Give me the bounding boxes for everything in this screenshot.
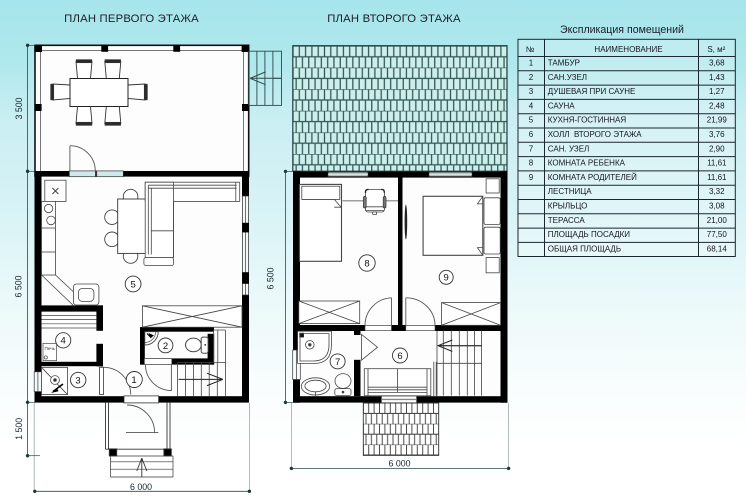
svg-text:1,43: 1,43 [709,73,725,82]
svg-text:9: 9 [529,173,534,182]
svg-text:1: 1 [529,59,534,68]
svg-text:21,99: 21,99 [707,116,728,125]
svg-text:6 500: 6 500 [266,267,276,289]
svg-text:6 000: 6 000 [388,458,410,468]
svg-text:3: 3 [529,87,534,96]
svg-text:2: 2 [529,73,534,82]
svg-text:3 500: 3 500 [14,97,24,119]
svg-text:3,68: 3,68 [709,59,725,68]
svg-text:6: 6 [529,130,534,139]
svg-text:НАИМЕНОВАНИЕ: НАИМЕНОВАНИЕ [594,45,662,54]
svg-text:Печь: Печь [45,346,56,351]
svg-text:68,14: 68,14 [707,244,728,253]
svg-text:Экспликация помещений: Экспликация помещений [560,24,684,36]
svg-text:11,61: 11,61 [707,159,727,168]
svg-text:САУНА: САУНА [548,101,575,110]
svg-text:КОМНАТА РЕБЕНКА: КОМНАТА РЕБЕНКА [548,159,626,168]
svg-text:ПЛАН ПЕРВОГО ЭТАЖА: ПЛАН ПЕРВОГО ЭТАЖА [64,13,199,25]
svg-text:ОБЩАЯ ПЛОЩАДЬ: ОБЩАЯ ПЛОЩАДЬ [548,244,621,253]
svg-text:8: 8 [364,258,369,269]
svg-text:№: № [526,45,535,54]
svg-text:9: 9 [444,273,449,284]
svg-text:3,32: 3,32 [709,187,725,196]
svg-text:1: 1 [131,375,136,386]
svg-text:77,50: 77,50 [707,230,728,239]
svg-text:6 500: 6 500 [14,275,24,297]
svg-text:ЛЕСТНИЦА: ЛЕСТНИЦА [548,187,592,196]
svg-text:САН. УЗЕЛ: САН. УЗЕЛ [548,144,589,153]
svg-text:5: 5 [529,116,534,125]
svg-text:7: 7 [335,357,340,368]
svg-text:ДУШЕВАЯ ПРИ САУНЕ: ДУШЕВАЯ ПРИ САУНЕ [548,87,636,96]
svg-text:ТАМБУР: ТАМБУР [548,59,580,68]
svg-text:ТЕРАССА: ТЕРАССА [548,216,586,225]
svg-text:4: 4 [529,101,534,110]
svg-text:7: 7 [529,144,534,153]
svg-text:2: 2 [163,341,168,352]
svg-text:6: 6 [397,351,402,362]
svg-text:4: 4 [61,336,66,347]
svg-text:ХОЛЛ ВТОРОГО ЭТАЖА: ХОЛЛ ВТОРОГО ЭТАЖА [548,130,643,139]
svg-text:КУХНЯ-ГОСТИННАЯ: КУХНЯ-ГОСТИННАЯ [548,116,627,125]
svg-text:3,76: 3,76 [709,130,725,139]
svg-text:S, м²: S, м² [707,45,725,54]
svg-text:21,00: 21,00 [707,216,728,225]
svg-text:3,08: 3,08 [709,202,725,211]
svg-text:КОМНАТА РОДИТЕЛЕЙ: КОМНАТА РОДИТЕЛЕЙ [548,173,637,182]
svg-text:8: 8 [529,159,534,168]
svg-text:КРЫЛЬЦО: КРЫЛЬЦО [548,202,588,211]
svg-text:ПЛОЩАДЬ ПОСАДКИ: ПЛОЩАДЬ ПОСАДКИ [548,230,630,239]
svg-text:3: 3 [75,375,80,386]
svg-text:5: 5 [130,279,135,290]
svg-text:1,27: 1,27 [709,87,725,96]
svg-text:11,61: 11,61 [707,173,727,182]
svg-text:6 000: 6 000 [130,482,152,492]
svg-text:ПЛАН ВТОРОГО ЭТАЖА: ПЛАН ВТОРОГО ЭТАЖА [327,13,461,25]
svg-text:САН.УЗЕЛ: САН.УЗЕЛ [548,73,587,82]
svg-text:2,48: 2,48 [709,101,725,110]
svg-text:1 500: 1 500 [14,418,24,440]
svg-text:2,90: 2,90 [709,144,725,153]
